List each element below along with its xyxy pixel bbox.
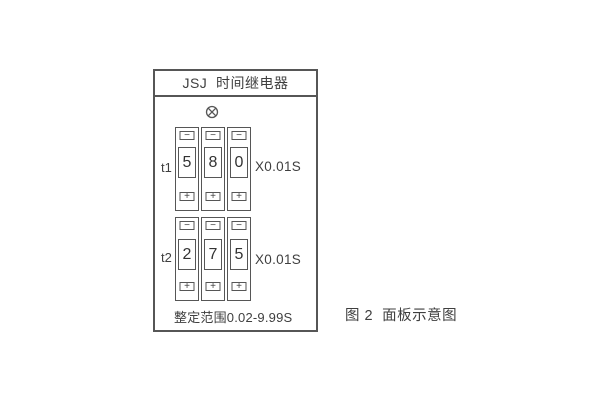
- t2-multiplier-label: X0.01S: [255, 252, 301, 267]
- t2-digit2-window: 7: [204, 239, 222, 270]
- t1-multiplier-label: X0.01S: [255, 159, 301, 174]
- indicator-lamp-icon: [205, 105, 219, 119]
- thumbwheel-t1-digit3: − 0 +: [227, 127, 251, 211]
- t1-digit1-window: 5: [178, 147, 196, 178]
- t2-digit3-window: 5: [230, 239, 248, 270]
- t2-digit3-plus-button[interactable]: +: [232, 282, 247, 291]
- t2-digit2-plus-button[interactable]: +: [206, 282, 221, 291]
- t1-digit3-plus-button[interactable]: +: [232, 192, 247, 201]
- t1-digit1-minus-button[interactable]: −: [180, 131, 195, 140]
- thumbwheel-t2-digit3: − 5 +: [227, 217, 251, 301]
- t1-label: t1: [161, 160, 172, 175]
- thumbwheel-t2-digit2: − 7 +: [201, 217, 225, 301]
- t2-digit1-plus-button[interactable]: +: [180, 282, 195, 291]
- t2-label: t2: [161, 250, 172, 265]
- thumbwheel-t1-digit1: − 5 +: [175, 127, 199, 211]
- t1-digit2-minus-button[interactable]: −: [206, 131, 221, 140]
- t2-digit3-minus-button[interactable]: −: [232, 221, 247, 230]
- t2-digit1-window: 2: [178, 239, 196, 270]
- t1-digit1-plus-button[interactable]: +: [180, 192, 195, 201]
- panel-header: JSJ 时间继电器: [155, 71, 316, 97]
- t2-digit2-minus-button[interactable]: −: [206, 221, 221, 230]
- t2-digit1-minus-button[interactable]: −: [180, 221, 195, 230]
- t1-digit2-plus-button[interactable]: +: [206, 192, 221, 201]
- t1-digit3-window: 0: [230, 147, 248, 178]
- thumbwheel-t1-digit2: − 8 +: [201, 127, 225, 211]
- figure-caption: 图 2 面板示意图: [345, 304, 457, 325]
- t1-digit2-window: 8: [204, 147, 222, 178]
- panel-title: JSJ 时间继电器: [182, 73, 288, 93]
- t1-digit3-minus-button[interactable]: −: [232, 131, 247, 140]
- thumbwheel-group-t2: − 2 + − 7 + − 5 +: [175, 217, 251, 301]
- setting-range-label: 整定范围0.02-9.99S: [174, 307, 314, 326]
- thumbwheel-group-t1: − 5 + − 8 + − 0 +: [175, 127, 251, 211]
- relay-front-panel: JSJ 时间继电器 − 5 + − 8 + − 0 +: [153, 69, 318, 332]
- thumbwheel-t2-digit1: − 2 +: [175, 217, 199, 301]
- figure: JSJ 时间继电器 − 5 + − 8 + − 0 +: [0, 0, 600, 400]
